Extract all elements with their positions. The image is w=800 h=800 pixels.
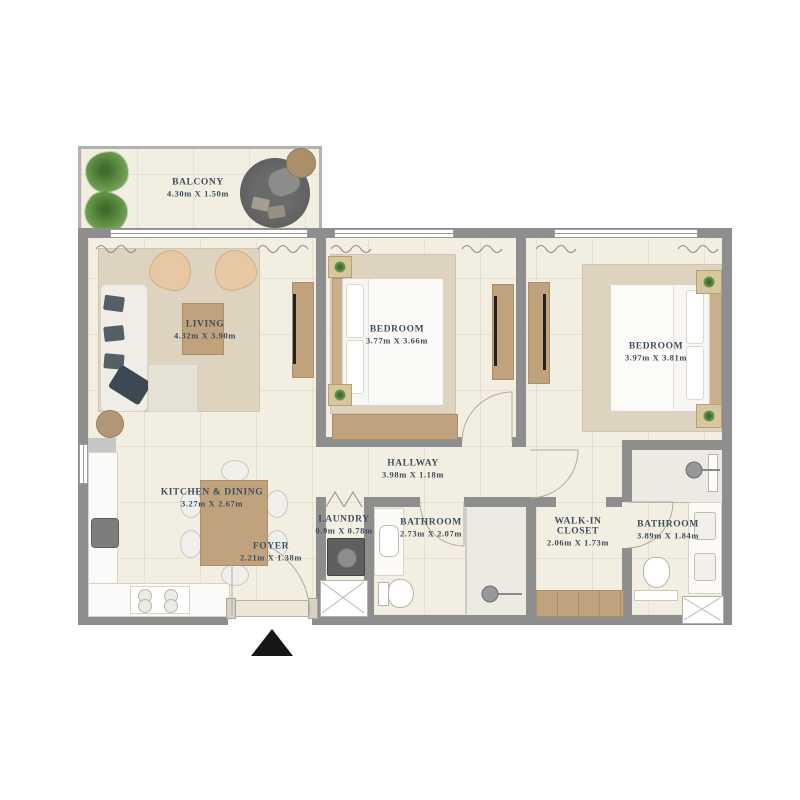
room-name: LIVING: [174, 320, 236, 330]
dining-chair: [221, 460, 249, 482]
wall-right: [722, 228, 732, 625]
bed1-nightstand: [328, 384, 352, 406]
room-name: CLOSET: [547, 527, 609, 537]
plant-icon: [86, 152, 128, 192]
room-name: LAUNDRY: [315, 515, 372, 525]
tv-console-bedroom2: [528, 282, 550, 384]
bed2-nightstand: [696, 270, 722, 294]
wall-bottom-east: [312, 615, 732, 625]
sofa-pillow: [103, 325, 124, 342]
kitchen-appliance: [91, 518, 119, 548]
bathroom2-towel-bar: [708, 454, 718, 492]
dining-chair: [180, 530, 202, 558]
bedroom1-window: [334, 229, 454, 238]
bed2-pillow: [686, 346, 704, 400]
walkin-wardrobe: [536, 590, 624, 617]
plant-icon: [704, 411, 715, 422]
room-dims: 3.98m X 1.18m: [382, 470, 444, 480]
entry-door-cap: [308, 598, 318, 619]
room-label-bedroom1: BEDROOM 3.77m X 3.66m: [366, 325, 428, 346]
room-dims: 3.97m X 3.81m: [625, 353, 687, 363]
laundry-closet: [320, 580, 368, 617]
wall-living-bedroom1: [316, 238, 326, 447]
washing-machine: [327, 538, 365, 576]
room-label-laundry: LAUNDRY 0.9m X 0.78m: [315, 515, 372, 536]
tv-living: [293, 294, 296, 364]
bed1-pillow: [346, 284, 364, 338]
wall-left: [78, 228, 88, 625]
room-name: FOYER: [240, 542, 302, 552]
side-table: [96, 410, 124, 438]
room-dims: 3.89m X 1.84m: [637, 531, 699, 541]
room-label-hallway: HALLWAY 3.98m X 1.18m: [382, 459, 444, 480]
sofa-pillow: [103, 295, 125, 313]
wall-bedroom1-bedroom2: [516, 238, 526, 447]
wall-bathroom2-top: [632, 440, 722, 450]
room-label-foyer: FOYER 2.21m X 1.38m: [240, 542, 302, 563]
bathroom1-toilet-bowl: [388, 579, 414, 608]
room-label-bathroom1: BATHROOM 2.73m X 2.07m: [400, 518, 462, 539]
entry-arrow-icon: [251, 629, 293, 656]
room-dims: 4.32m X 3.90m: [174, 331, 236, 341]
room-dims: 4.30m X 1.50m: [167, 189, 229, 199]
room-label-walk-in-closet: WALK-IN CLOSET 2.06m X 1.73m: [547, 517, 609, 548]
room-name: WALK-IN: [547, 517, 609, 527]
tv-bedroom1: [494, 296, 497, 366]
bed2-pillow: [686, 290, 704, 344]
floor-plan: BALCONY 4.30m X 1.50m LIVING 4.32m X 3.9…: [0, 0, 800, 800]
bedroom2-window: [554, 229, 698, 238]
wall-hallway-south-b: [464, 497, 526, 507]
wall-hallway-south-a: [374, 497, 420, 507]
entry-door-cap: [226, 598, 236, 619]
room-name: KITCHEN & DINING: [161, 488, 264, 498]
plant-icon: [335, 262, 346, 273]
washer-door: [337, 548, 357, 568]
bed2-headboard: [708, 280, 722, 414]
room-label-kitchen-dining: KITCHEN & DINING 3.27m X 2.67m: [161, 488, 264, 509]
room-dims: 2.21m X 1.38m: [240, 553, 302, 563]
room-label-balcony: BALCONY 4.30m X 1.50m: [167, 178, 229, 199]
balcony-slider-window: [110, 229, 308, 238]
room-dims: 2.06m X 1.73m: [547, 538, 609, 548]
wall-walkin-north-b: [606, 497, 622, 507]
bathroom2-vanity: [688, 502, 722, 594]
bathroom1-sink: [379, 525, 399, 557]
bathroom2-mat: [634, 590, 678, 601]
room-dims: 3.27m X 2.67m: [161, 499, 264, 509]
wall-bathroom1-walkin: [526, 497, 536, 625]
room-label-bathroom2: BATHROOM 3.89m X 1.84m: [637, 520, 699, 541]
balcony-table: [286, 148, 316, 178]
stove: [130, 586, 190, 614]
wall-walkin-north-a: [536, 497, 556, 507]
room-name: HALLWAY: [382, 459, 444, 469]
room-name: BEDROOM: [625, 342, 687, 352]
room-dims: 0.9m X 0.78m: [315, 526, 372, 536]
plant-icon: [704, 277, 715, 288]
dining-chair: [266, 490, 288, 518]
dining-chair: [221, 564, 249, 586]
entry-door-slab: [230, 600, 314, 617]
room-label-living: LIVING 4.32m X 3.90m: [174, 320, 236, 341]
wall-walkin-bathroom2-north: [622, 440, 632, 502]
bed1-nightstand: [328, 256, 352, 278]
stove-burner: [164, 599, 178, 613]
bedroom1-wardrobe: [332, 414, 458, 440]
bathroom2-sink: [694, 553, 716, 581]
room-name: BALCONY: [167, 178, 229, 188]
kitchen-window: [79, 444, 88, 484]
room-label-bedroom2: BEDROOM 3.97m X 3.81m: [625, 342, 687, 363]
room-dims: 2.73m X 2.07m: [400, 529, 462, 539]
bathroom2-toilet-bowl: [643, 557, 670, 588]
tv-bedroom2: [543, 294, 546, 370]
bathroom1-shower-floor: [466, 507, 526, 615]
bed2-nightstand: [696, 404, 722, 428]
room-name: BEDROOM: [366, 325, 428, 335]
bathroom2-closet: [682, 596, 724, 624]
room-name: BATHROOM: [400, 518, 462, 528]
room-dims: 3.77m X 3.66m: [366, 336, 428, 346]
sofa-ottoman: [148, 364, 198, 412]
plant-icon: [335, 390, 346, 401]
room-name: BATHROOM: [637, 520, 699, 530]
stove-burner: [138, 599, 152, 613]
